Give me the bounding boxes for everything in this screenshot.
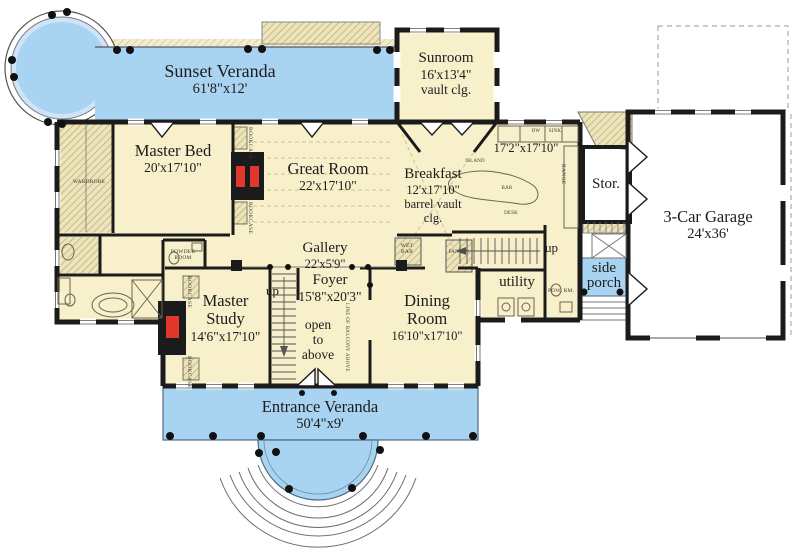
range-label: RANGE [560,164,566,184]
master-bed-dims: 20'x17'10" [114,160,232,175]
dining-dims: 16'10"x17'10" [368,329,486,343]
kitchen-dims: 17'2"x17'10" [474,141,578,155]
entrance-veranda-dims: 50'4"x9' [220,416,420,432]
gallery-name: Gallery [275,240,375,257]
gallery-dims: 22'x5'9" [275,257,375,271]
back-up-label: up [545,240,558,256]
great-room-dims: 22'x17'10" [268,178,388,193]
garage-name: 3-Car Garage [632,208,784,226]
kitchen-label: 17'2"x17'10" [474,141,578,155]
bookcase-label-4: BOOKCASE [247,202,253,234]
great-room-label: Great Room 22'x17'10" [268,160,388,194]
sunroom-name: Sunroom [394,50,498,67]
dining-line1: Dining [368,292,486,310]
sunset-veranda-label: Sunset Veranda 61'8"x12' [120,61,320,97]
sink-label: SINK [545,129,565,135]
side-porch-steps [578,302,630,320]
great-room-name: Great Room [268,160,388,178]
storage-name: Stor. [577,176,635,193]
great-room-fireplace [231,152,264,200]
pantry-label: PANTRY [443,250,475,256]
wet-bar-label: WET BAR [396,243,418,256]
side-porch-line1: side [576,261,632,276]
bookcase-label-1: BOOKCASE [186,276,192,308]
entrance-veranda-name: Entrance Veranda [220,398,420,416]
sunroom-dims: 16'x13'4" [394,67,498,82]
breakfast-label: Breakfast 12'x17'10" barrel vault clg. [384,166,482,225]
entrance-veranda-label: Entrance Veranda 50'4"x9' [220,398,420,433]
mudroom-door-x [592,234,626,258]
open-line2: to [288,332,348,347]
utility-label: utility [478,274,556,291]
storage-label: Stor. [577,176,635,193]
study-dims: 14'6"x17'10" [168,329,283,344]
sunset-veranda-name: Sunset Veranda [120,61,320,81]
foyer-name: Foyer [280,272,380,289]
dining-label: Dining Room 16'10"x17'10" [368,292,486,343]
breakfast-note2: clg. [384,211,482,225]
foyer-label: Foyer 15'8"x20'3" [280,272,380,304]
master-bed-name: Master Bed [114,142,232,160]
garage-label: 3-Car Garage 24'x36' [632,208,784,243]
side-porch-label: side porch [576,261,632,291]
desk-label: DESK [500,211,522,217]
pow-rm-label: POW. RM. [547,288,575,294]
open-line1: open [288,317,348,332]
master-bed-label: Master Bed 20'x17'10" [114,142,232,176]
balcony-line-label: LINE OF BALCONY ABOVE [344,303,349,372]
foyer-dims: 15'8"x20'3" [280,289,380,304]
floor-plan: Sunset Veranda 61'8"x12' Sunroom 16'x13'… [0,0,800,548]
open-to-above-label: open to above [288,317,348,362]
side-porch-line2: porch [576,276,632,291]
dw-label: DW [529,129,543,135]
breakfast-note1: barrel vault [384,197,482,211]
garage-dims: 24'x36' [632,226,784,242]
island-label: ISLAND [462,159,488,165]
dining-line2: Room [368,310,486,328]
bookcase-label-2: BOOKCASE [186,356,192,388]
sunset-veranda-dims: 61'8"x12' [120,81,320,97]
breakfast-dims: 12'x17'10" [384,183,482,197]
utility-name: utility [478,274,556,291]
gallery-label: Gallery 22'x5'9" [275,240,375,271]
breakfast-name: Breakfast [384,166,482,183]
open-line3: above [288,347,348,362]
sunroom-label: Sunroom 16'x13'4" vault clg. [394,50,498,97]
bookcase-label-3: BOOKCASE [247,127,253,159]
study-line2: Study [168,310,283,328]
sunroom-note: vault clg. [394,82,498,97]
powder-room-label: POWDER ROOM [164,249,202,262]
wardrobe-label: WARDROBE [66,179,112,185]
gallery-pillar-left [231,260,242,271]
gallery-pillar-right [396,260,407,271]
bar-label: BAR [498,186,516,192]
veranda-top-steps [262,22,380,44]
